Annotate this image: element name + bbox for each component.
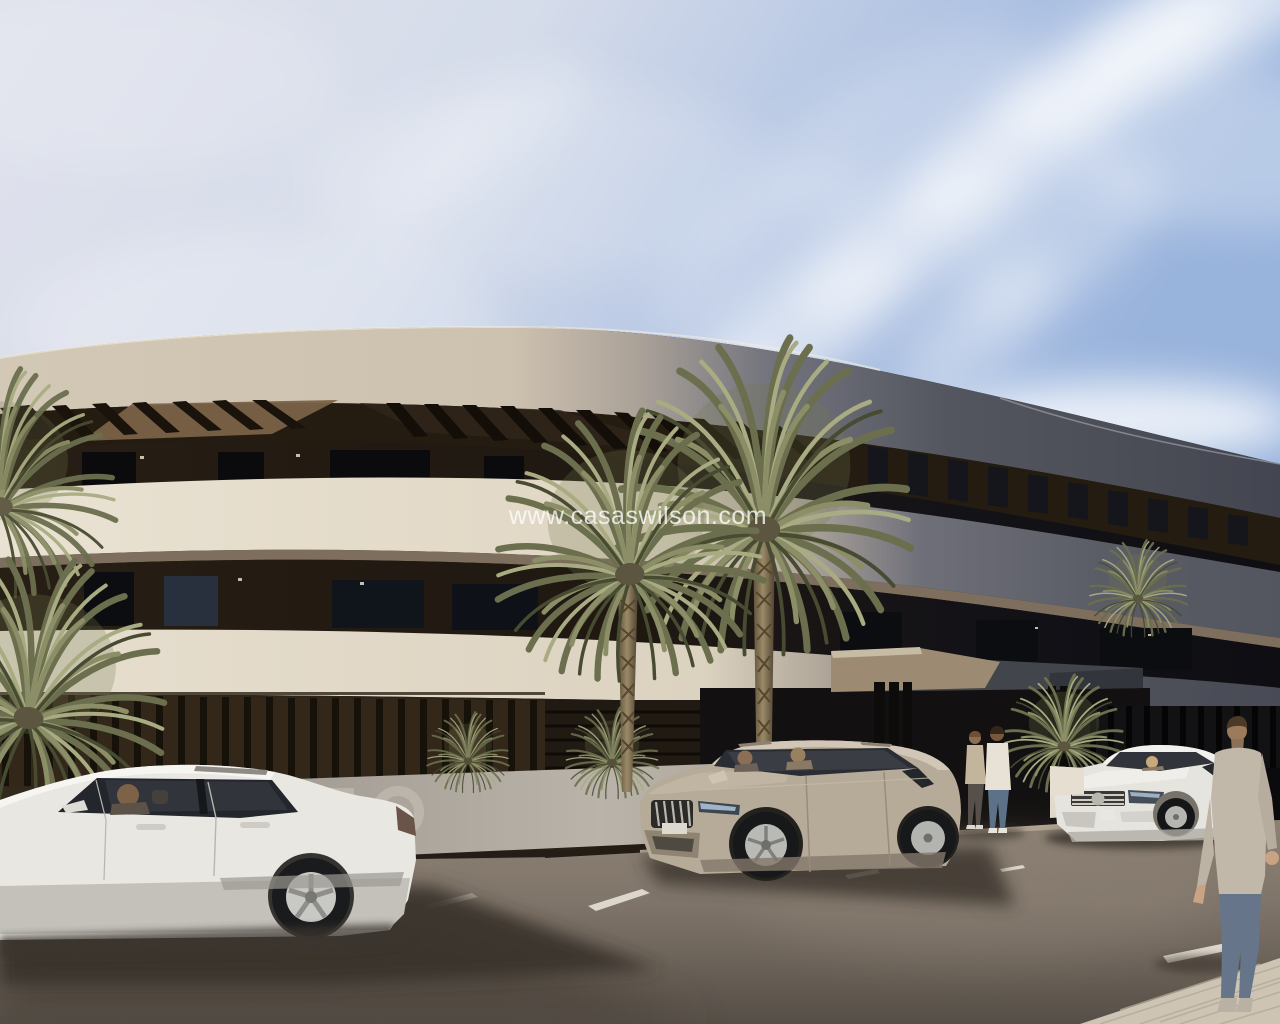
- svg-text:www.casaswilson.com: www.casaswilson.com: [508, 502, 767, 530]
